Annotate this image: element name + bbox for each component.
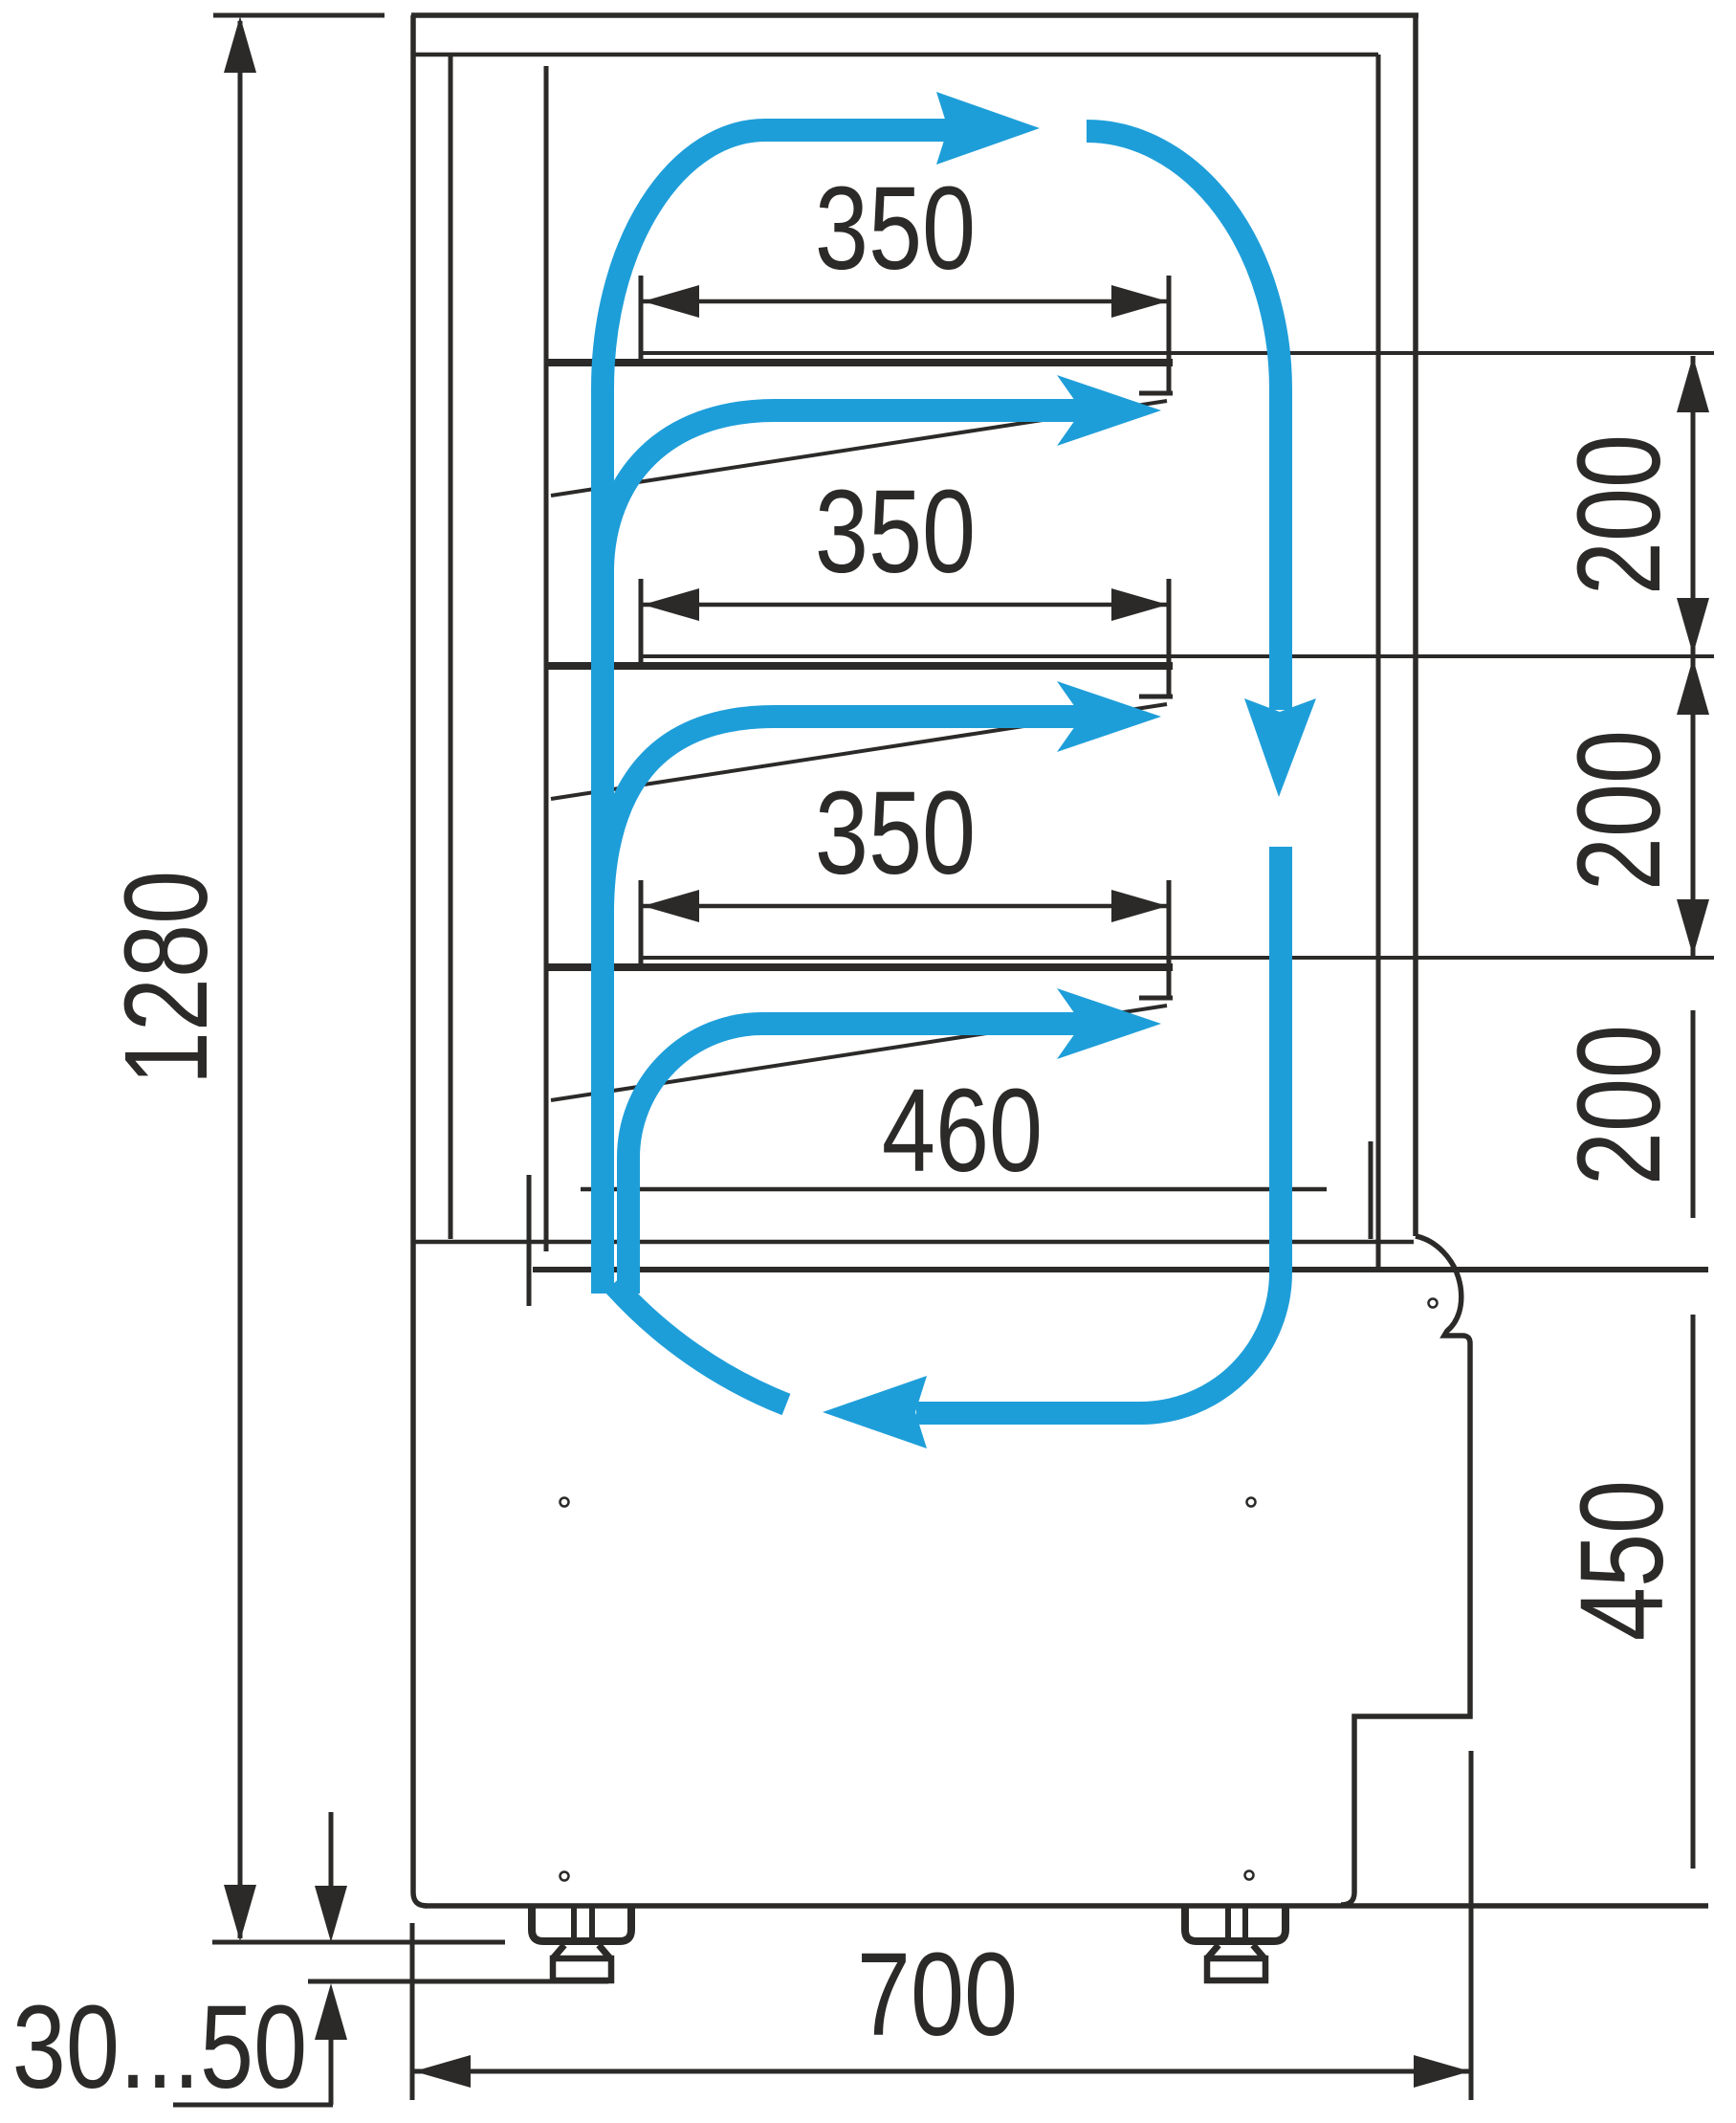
svg-text:200: 200 [1552, 730, 1684, 891]
svg-text:350: 350 [815, 162, 976, 294]
svg-text:350: 350 [815, 465, 976, 597]
svg-text:200: 200 [1552, 434, 1684, 595]
svg-text:350: 350 [815, 766, 976, 898]
svg-text:200: 200 [1552, 1025, 1684, 1185]
svg-text:460: 460 [882, 1064, 1043, 1196]
svg-text:700: 700 [857, 1928, 1018, 2060]
svg-text:1280: 1280 [99, 871, 231, 1085]
svg-text:30...50: 30...50 [12, 1980, 307, 2112]
svg-text:450: 450 [1555, 1480, 1687, 1641]
